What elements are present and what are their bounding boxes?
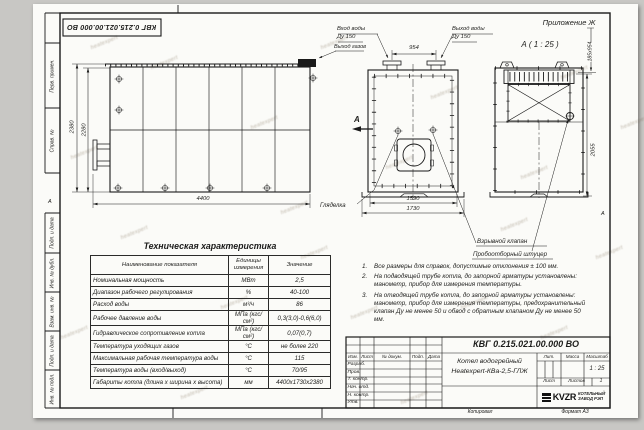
inlet-label: Вход воды Ду 150 <box>337 25 365 41</box>
inlet-label-line1: Вход воды <box>337 25 365 33</box>
doc-number-top-box: КВГ 0.215.021.00.000 ВО <box>63 19 161 36</box>
copied-label: Копировал <box>450 410 510 415</box>
section-arrow-letter: А <box>354 116 360 124</box>
format-label: Формат А3 <box>545 410 605 415</box>
tb-col-docum: № докум. <box>374 355 410 360</box>
kvzr-org-name: КОТЕЛЬНЫЙ ЗАВОД РЭП <box>578 392 605 402</box>
dim-4400: 4400 <box>183 197 223 203</box>
tb-scale-label: Масштаб <box>584 355 610 360</box>
note-item: 3.На отводящей трубе котла, до запорной … <box>362 292 590 325</box>
product-name-line1: Котел водогрейный <box>443 357 536 367</box>
kvzr-logo-icon <box>542 393 551 402</box>
spec-header-value: Значение <box>269 256 331 275</box>
dim-2280: 2280 <box>70 125 100 134</box>
kvzr-logo-text: KVZR <box>553 392 576 402</box>
dim-1590: 1590 <box>393 197 433 203</box>
spec-row: Габариты котла (длина х ширина х высота)… <box>91 377 331 389</box>
outlet-label-line2: Ду 150 <box>452 33 485 41</box>
outlet-label: Выход воды Ду 150 <box>452 25 485 41</box>
tb-col-podp: Подп. <box>410 355 426 360</box>
margin-stamp-podp-data-1: Подп. и дата <box>45 213 60 253</box>
tb-col-izm: Изм. <box>346 355 360 360</box>
inlet-label-line2: Ду 150 <box>337 33 365 41</box>
tb-scale-value: 1 : 25 <box>584 366 610 372</box>
titleblock-product-name: Котел водогрейный Heatexpert-КВа-2,5-ГЛЖ <box>443 357 536 377</box>
zone-letter-right: А <box>601 212 605 218</box>
dim-954: 954 <box>398 46 430 52</box>
tb-col-list: Лист <box>360 355 374 360</box>
peephole-label: Гляделка <box>320 203 346 209</box>
spec-row: Расход водым³/ч86 <box>91 299 331 311</box>
margin-stamp-perv-primen: Перв. примен. <box>45 43 60 108</box>
explosion-valve-label: Взрывной клапан <box>477 239 527 245</box>
tb-row-tkontr: Т. контр. <box>348 378 369 383</box>
margin-stamp-inv-podl: Инв. № подл. <box>45 370 60 408</box>
section-a-title: А ( 1 : 25 ) <box>500 41 580 49</box>
doc-number-top: КВГ 0.215.021.00.000 ВО <box>67 24 156 31</box>
titleblock-doc-number: КВГ 0.215.021.00.000 ВО <box>443 340 609 349</box>
tb-col-data: Дата <box>426 355 442 360</box>
spec-table-block: Техническая характеристика Наименование … <box>90 241 330 389</box>
kvzr-logo: KVZR КОТЕЛЬНЫЙ ЗАВОД РЭП <box>538 387 609 407</box>
spec-row: Максимальная рабочая температура воды°С1… <box>91 353 331 365</box>
spec-row: Гидравлическое сопротивление котлаМПа (к… <box>91 326 331 341</box>
spec-row: Температура воды (вход/выход)°С70/95 <box>91 365 331 377</box>
sampling-fitting-label: Пробоотборный штуцер <box>473 252 547 258</box>
tb-row-razrab: Разраб. <box>348 363 366 368</box>
product-name-line2: Heatexpert-КВа-2,5-ГЛЖ <box>443 367 536 377</box>
dim-2055: 2055 <box>579 145 609 154</box>
org-line2: ЗАВОД РЭП <box>578 397 605 402</box>
spec-header-row: Наименование показателя Единицы измерени… <box>91 256 331 275</box>
tb-sheets-label: Листов <box>561 379 592 384</box>
tb-mass-label: Масса <box>561 355 584 360</box>
spec-row: Рабочее давление водыМПа (кгс/см²)0,3(3,… <box>91 311 331 326</box>
tb-lit-label: Лит. <box>537 355 561 360</box>
spec-header-name: Наименование показателя <box>91 256 229 275</box>
margin-stamp-podp-data-2: Подп. и дата <box>45 331 60 370</box>
gas-outlet-label: Выход газов <box>334 45 366 51</box>
note-item: 2.На подводящей трубе котла, до запорной… <box>362 273 590 289</box>
outlet-label-line1: Выход воды <box>452 25 485 33</box>
spec-row: Температура уходящих газов°Сне более 220 <box>91 341 331 353</box>
dim-185x954: 185х954 <box>576 47 606 56</box>
dim-1730: 1730 <box>393 207 433 213</box>
tb-sheets-value: 1 <box>592 379 610 384</box>
tb-row-utv: Утв. <box>348 401 359 406</box>
margin-stamp-inv-dubl: Инв. № дубл. <box>45 253 60 292</box>
margin-stamp-vzam-inv: Взам. инв. № <box>45 292 60 331</box>
tb-row-nachotd: Нач. отд. <box>348 386 370 391</box>
notes: 1.Все размеры для справок, допустимые от… <box>362 263 590 326</box>
spec-header-unit: Единицы измерения <box>229 256 269 275</box>
zone-letter-left: А <box>48 200 52 206</box>
tb-sheet-label: Лист <box>537 379 561 384</box>
tb-row-nkontr: Н. контр. <box>348 394 370 399</box>
margin-stamp-sprav-no: Справ. № <box>45 108 60 173</box>
spec-row: Диапазон рабочего регулирования%40-100 <box>91 287 331 299</box>
appendix-label: Приложение Ж <box>528 19 610 27</box>
drawing-sheet-screenshot: heatexpertheatexpertheatexpertheatexpert… <box>0 0 644 430</box>
spec-table: Наименование показателя Единицы измерени… <box>90 255 331 389</box>
note-item: 1.Все размеры для справок, допустимые от… <box>362 263 590 271</box>
spec-table-title: Техническая характеристика <box>90 241 330 251</box>
spec-row: Номинальная мощностьМВт2,5 <box>91 275 331 287</box>
tb-row-prov: Пров. <box>348 371 361 376</box>
